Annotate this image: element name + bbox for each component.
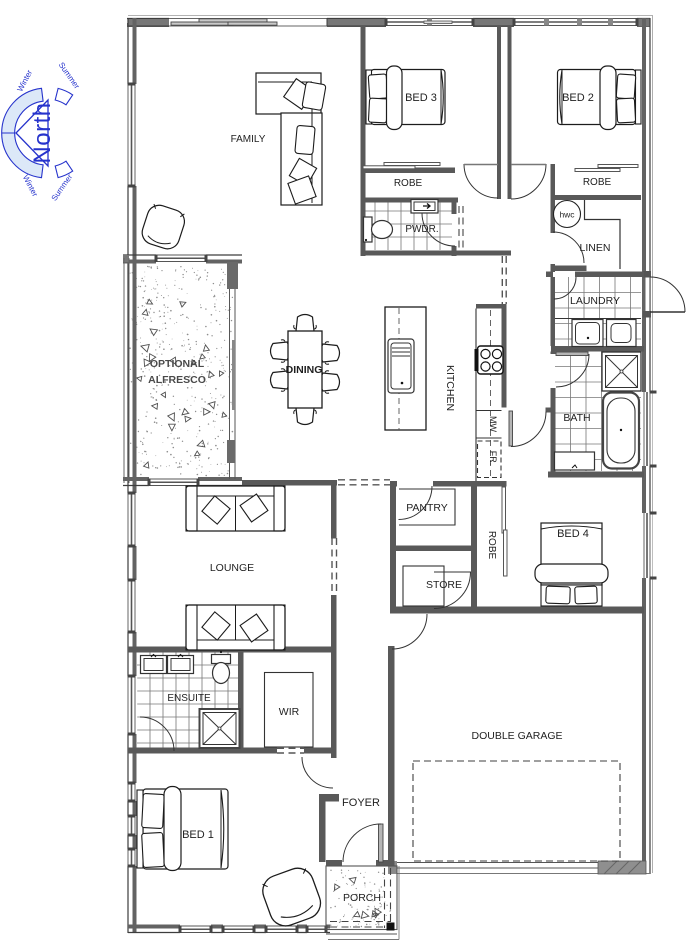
svg-text:BED 2: BED 2	[562, 92, 594, 104]
svg-text:MW: MW	[488, 416, 498, 432]
svg-text:ROBE: ROBE	[583, 177, 612, 188]
svg-text:LINEN: LINEN	[580, 242, 611, 254]
svg-text:LOUNGE: LOUNGE	[210, 562, 254, 574]
svg-text:ENSUITE: ENSUITE	[167, 693, 211, 704]
svg-text:FOYER: FOYER	[342, 797, 380, 809]
svg-text:STORE: STORE	[426, 579, 462, 591]
svg-text:OPTIONAL: OPTIONAL	[150, 358, 205, 370]
svg-text:DINING: DINING	[286, 364, 323, 376]
svg-text:WIR: WIR	[279, 706, 300, 718]
svg-text:BED 4: BED 4	[557, 528, 589, 540]
svg-text:PWDR.: PWDR.	[405, 224, 438, 235]
svg-text:BATH: BATH	[563, 412, 590, 424]
svg-text:BED 1: BED 1	[182, 829, 214, 841]
svg-text:DOUBLE GARAGE: DOUBLE GARAGE	[471, 730, 562, 742]
svg-text:PORCH: PORCH	[343, 892, 381, 904]
svg-text:FAMILY: FAMILY	[231, 134, 266, 145]
svg-text:FR.: FR.	[488, 451, 498, 466]
svg-text:KITCHEN: KITCHEN	[444, 365, 456, 411]
svg-text:North: North	[29, 102, 56, 163]
svg-text:ROBE: ROBE	[394, 178, 423, 189]
svg-text:PANTRY: PANTRY	[406, 502, 448, 514]
svg-text:BED 3: BED 3	[405, 92, 437, 104]
svg-text:ALFRESCO: ALFRESCO	[148, 374, 206, 386]
svg-text:LAUNDRY: LAUNDRY	[570, 295, 620, 307]
svg-text:ROBE: ROBE	[486, 531, 497, 560]
svg-text:hwc: hwc	[559, 210, 575, 220]
